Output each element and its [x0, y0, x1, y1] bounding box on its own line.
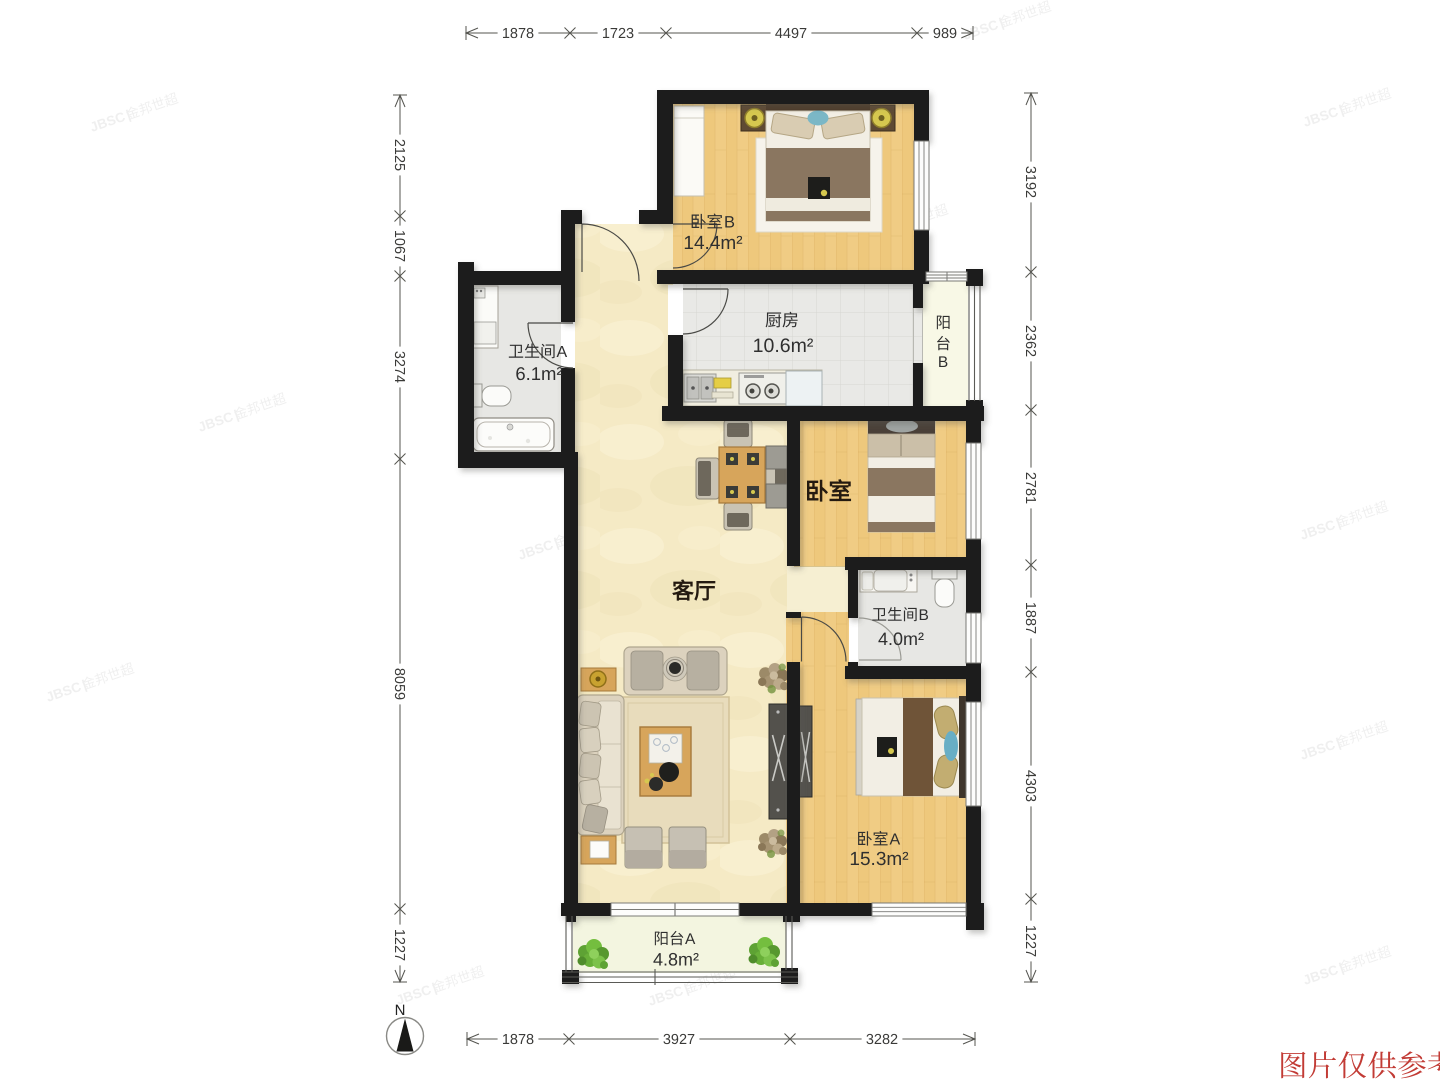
svg-text:2362: 2362: [1022, 325, 1038, 357]
svg-text:A: A: [685, 931, 696, 948]
svg-text:N: N: [395, 1002, 406, 1019]
svg-text:2125: 2125: [391, 139, 407, 171]
svg-text:3192: 3192: [1022, 166, 1038, 198]
svg-text:A: A: [557, 344, 568, 361]
svg-text:B: B: [919, 607, 929, 624]
svg-text:1227: 1227: [391, 929, 407, 961]
svg-text:4303: 4303: [1022, 770, 1038, 802]
svg-text:4497: 4497: [775, 26, 807, 42]
svg-text:14.4m²: 14.4m²: [683, 233, 742, 254]
svg-text:15.3m²: 15.3m²: [849, 849, 908, 870]
svg-text:1067: 1067: [391, 230, 407, 262]
svg-text:1887: 1887: [1022, 602, 1038, 634]
svg-text:2781: 2781: [1022, 472, 1038, 504]
svg-text:989: 989: [933, 26, 957, 42]
svg-text:1227: 1227: [1022, 925, 1038, 957]
svg-text:4.8m²: 4.8m²: [653, 950, 699, 970]
svg-text:6.1m²: 6.1m²: [515, 363, 562, 384]
svg-text:4.0m²: 4.0m²: [878, 629, 924, 649]
svg-text:1878: 1878: [502, 26, 534, 42]
svg-text:3927: 3927: [663, 1032, 695, 1048]
svg-text:10.6m²: 10.6m²: [753, 335, 814, 357]
svg-text:B: B: [724, 214, 735, 232]
svg-text:1878: 1878: [502, 1032, 534, 1048]
svg-text:3274: 3274: [391, 351, 407, 383]
svg-text:3282: 3282: [866, 1032, 898, 1048]
svg-text:B: B: [938, 354, 948, 371]
svg-text:A: A: [890, 832, 901, 849]
svg-text:8059: 8059: [391, 668, 407, 700]
svg-text:1723: 1723: [602, 26, 634, 42]
